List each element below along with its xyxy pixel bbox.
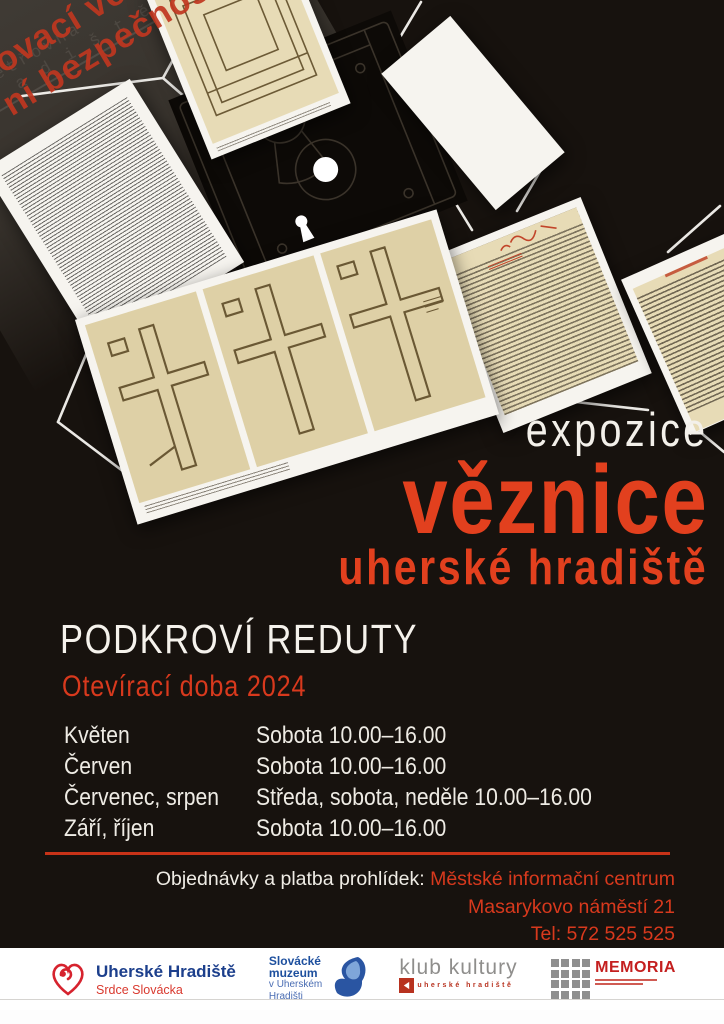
memoria-tagline-lines xyxy=(595,983,643,985)
opening-hours-heading: Otevírací doba 2024 xyxy=(62,670,353,704)
logo-klub-kultury: klub kultury uherské hradiště xyxy=(399,956,517,1003)
heart-swirl-icon xyxy=(48,959,88,999)
opening-hours-table: Květen Sobota 10.00–16.00 Červen Sobota … xyxy=(64,720,638,844)
logo-slovacke-muzeum: Slovácké muzeum v Uherském Hradišti xyxy=(269,955,366,1003)
schedule-row: Květen Sobota 10.00–16.00 xyxy=(64,720,638,751)
typed-text-lines xyxy=(636,249,724,413)
memoria-tagline-lines xyxy=(595,979,657,981)
schedule-months: Červen xyxy=(64,753,256,781)
schedule-row: Září, říjen Sobota 10.00–16.00 xyxy=(64,813,638,844)
logo-uh-tagline: Srdce Slovácka xyxy=(96,983,236,997)
title-sub: uherské hradiště xyxy=(268,540,708,596)
schedule-months: Květen xyxy=(64,722,256,750)
schedule-row: Červen Sobota 10.00–16.00 xyxy=(64,751,638,782)
logo-uh-name: Uherské Hradiště xyxy=(96,962,236,982)
logo-muzeum-name: muzeum xyxy=(269,967,322,979)
small-keyhole-icon xyxy=(294,214,315,243)
red-chevron-icon xyxy=(399,978,414,993)
contact-phone: Tel: 572 525 525 xyxy=(156,921,675,949)
contact-label: Objednávky a platba prohlídek: xyxy=(156,868,430,890)
schedule-times: Sobota 10.00–16.00 xyxy=(256,753,472,781)
contact-address: Masarykovo náměstí 21 xyxy=(156,894,675,922)
divider-rule xyxy=(45,852,670,855)
logo-klub-tagline: uherské hradiště xyxy=(417,982,513,989)
logo-uherske-hradiste: Uherské Hradiště Srdce Slovácka xyxy=(48,959,236,999)
contact-highlight: Městské informační centrum xyxy=(430,868,675,890)
logo-muzeum-sub: v Uherském xyxy=(269,979,322,991)
venue-title: PODKROVÍ REDUTY xyxy=(60,616,486,663)
schedule-times: Středa, sobota, neděle 10.00–16.00 xyxy=(256,784,638,812)
exhibition-poster: Vyšetřovna h r a d i š t ě xyxy=(0,0,724,1024)
logo-muzeum-sub: Hradišti xyxy=(269,991,322,1003)
schedule-times: Sobota 10.00–16.00 xyxy=(256,815,472,843)
blue-swirl-icon xyxy=(330,955,366,1003)
schedule-times: Sobota 10.00–16.00 xyxy=(256,722,472,750)
memoria-squares-icon xyxy=(551,959,591,999)
booking-contact: Objednávky a platba prohlídek: Městské i… xyxy=(156,866,675,949)
schedule-months: Červenec, srpen xyxy=(64,784,256,812)
schedule-row: Červenec, srpen Středa, sobota, neděle 1… xyxy=(64,782,638,813)
schedule-months: Září, říjen xyxy=(64,815,256,843)
logo-klub-name: klub kultury xyxy=(399,956,517,980)
logo-memoria-name: MEMORIA xyxy=(595,959,676,977)
partner-logo-bar: Uherské Hradiště Srdce Slovácka Slovácké… xyxy=(0,948,724,1024)
logo-memoria: MEMORIA xyxy=(551,959,676,999)
